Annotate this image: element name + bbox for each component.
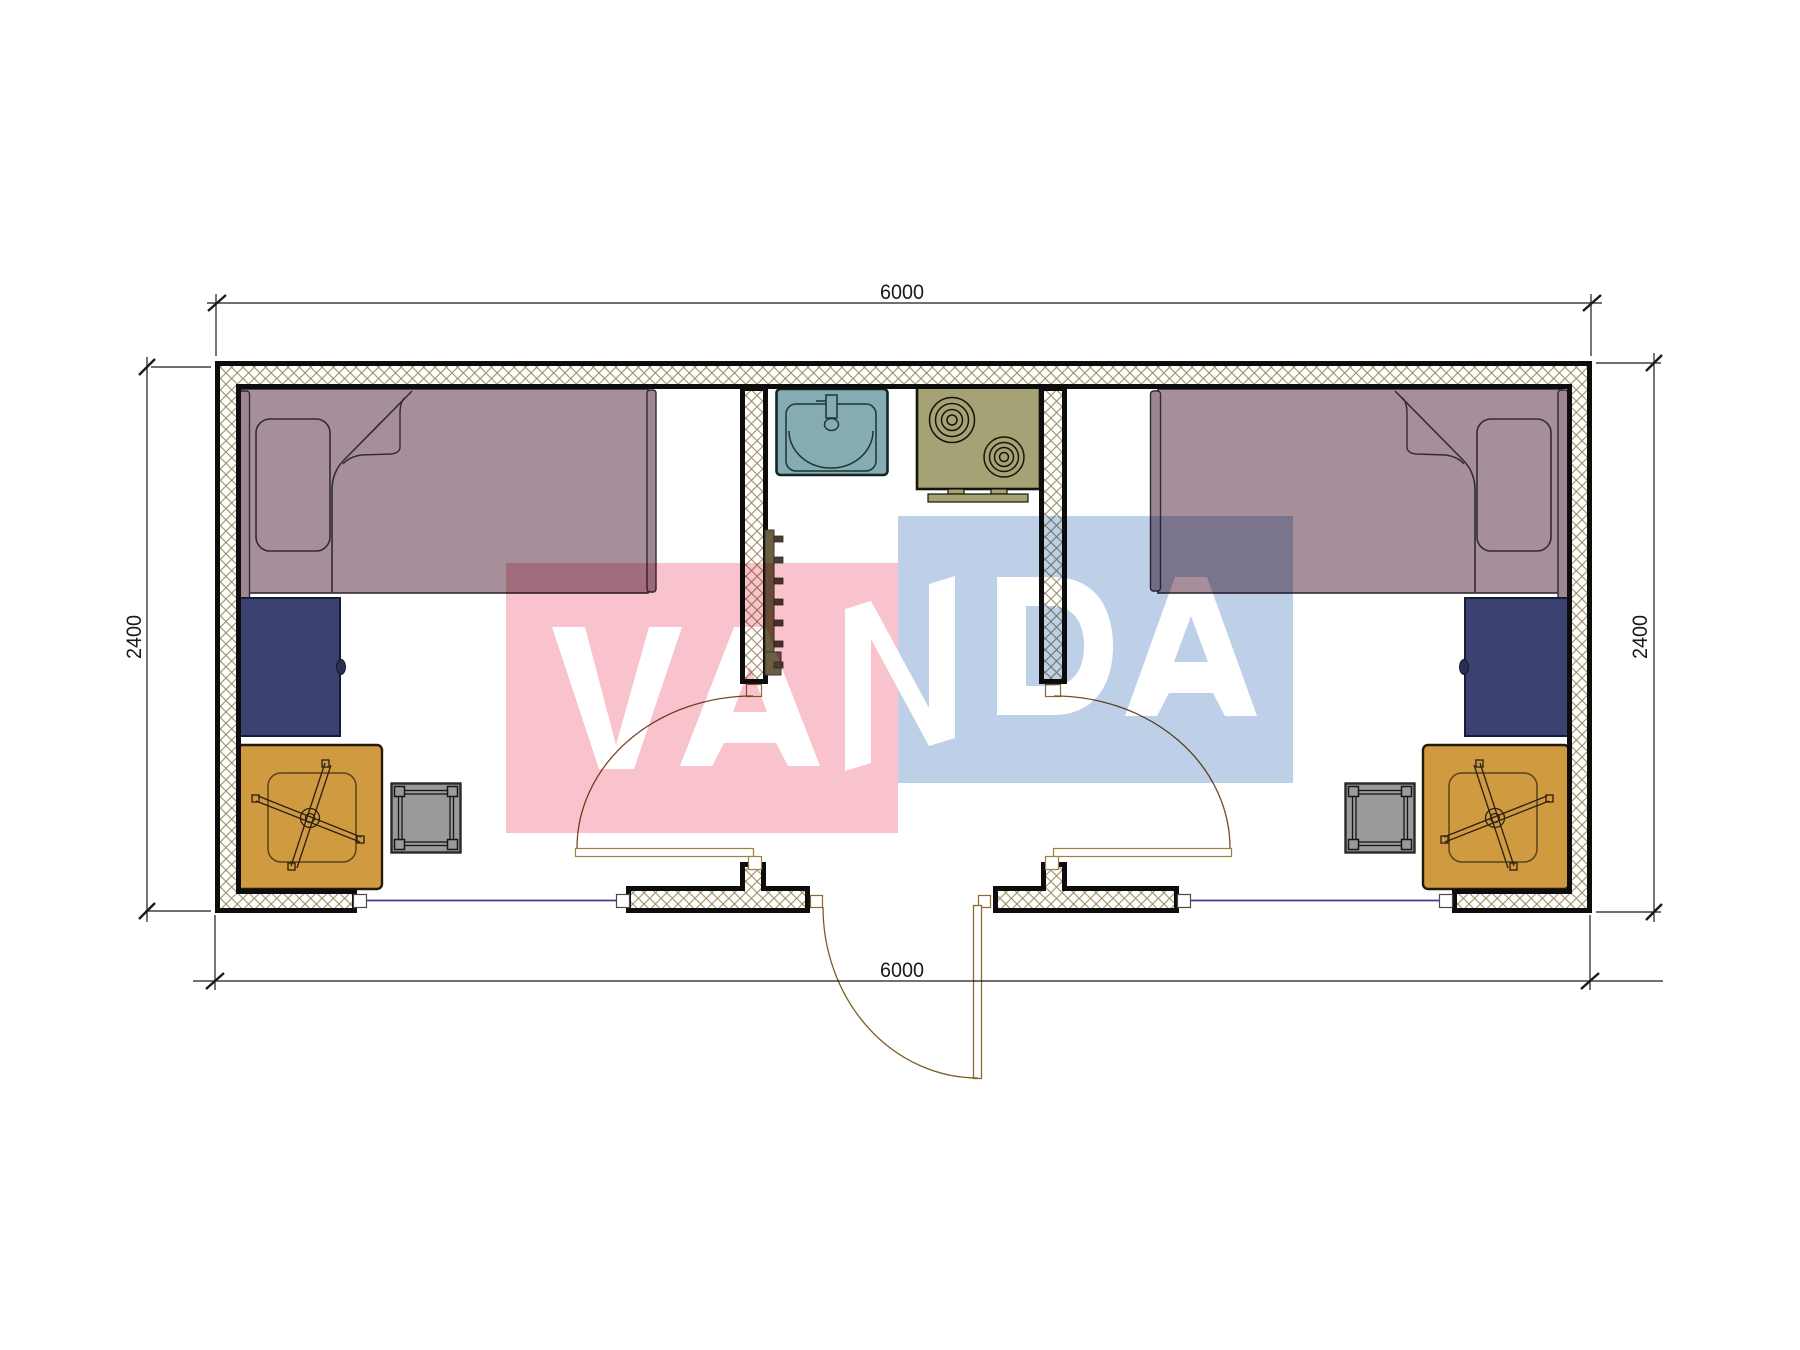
svg-text:2400: 2400 — [1629, 615, 1652, 659]
svg-text:2400: 2400 — [123, 615, 146, 659]
svg-text:6000: 6000 — [880, 281, 924, 304]
svg-text:6000: 6000 — [880, 959, 924, 982]
